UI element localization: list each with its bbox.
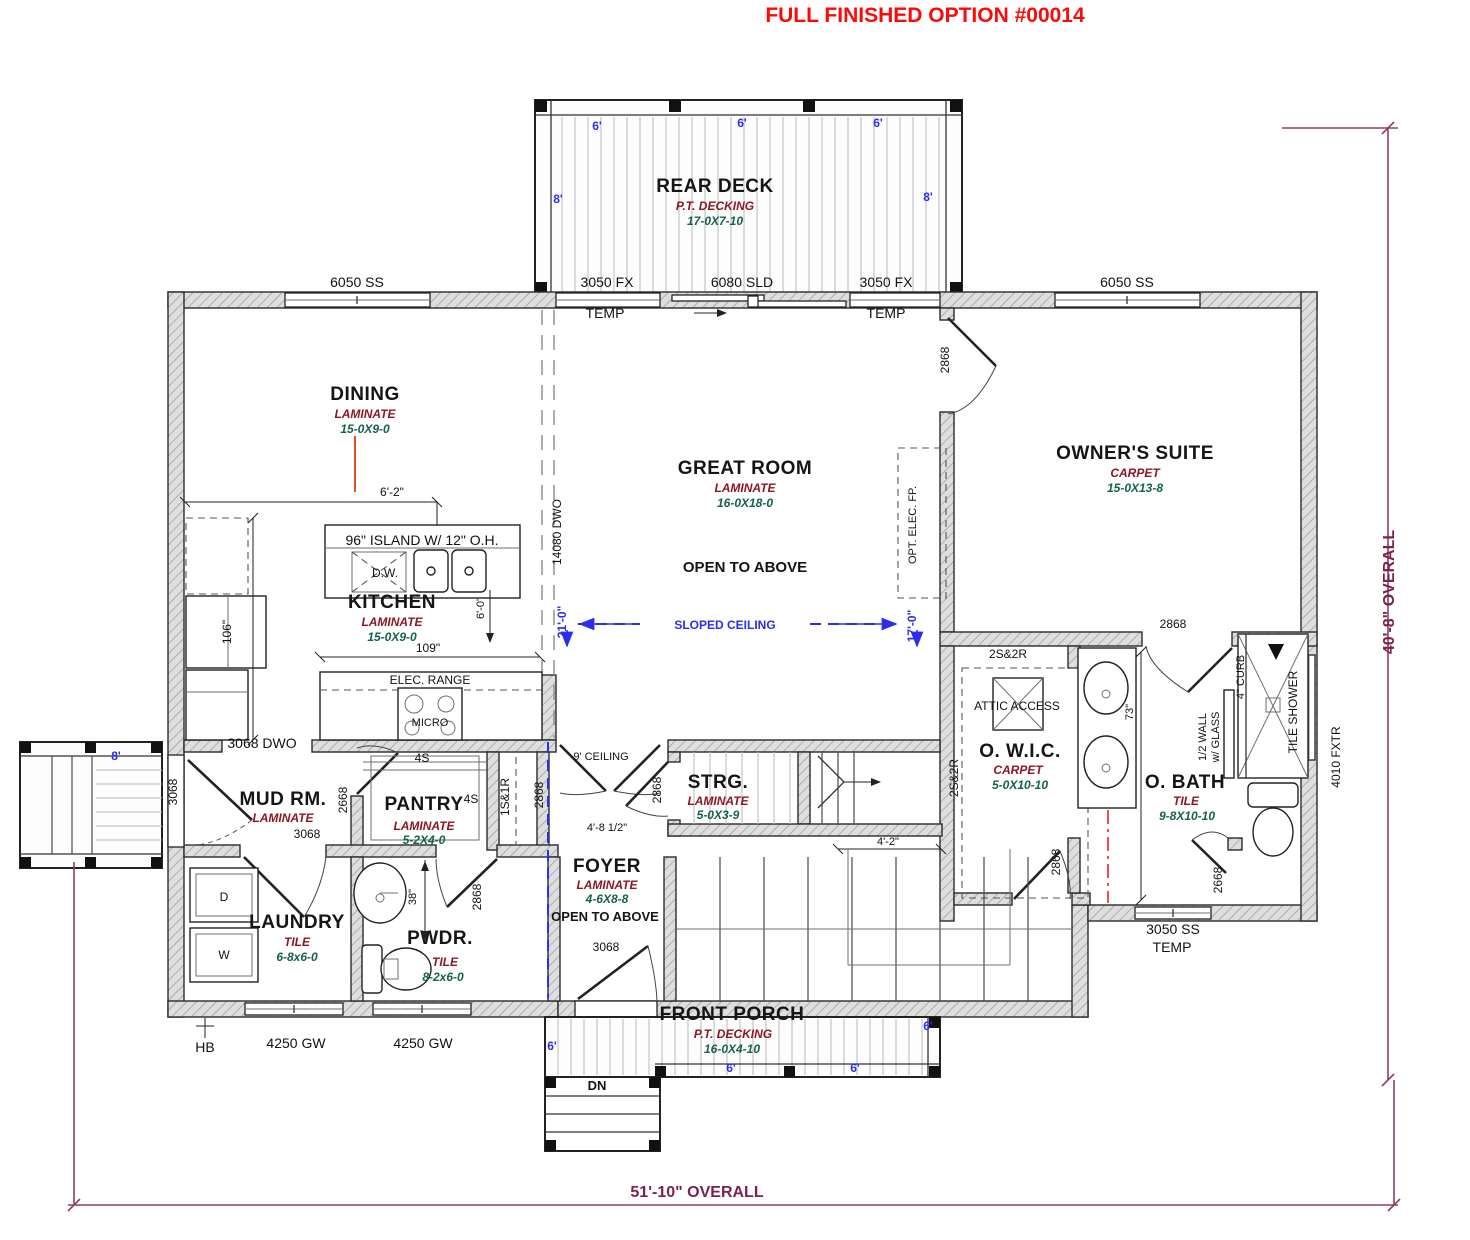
room-size-kitchen: 15-0X9-0 [367, 630, 417, 644]
dim-73: 73" [1124, 704, 1136, 720]
porch-dim: 6' [923, 1019, 933, 1033]
room-label-pantry: PANTRY [385, 794, 464, 815]
window-tag: 6050 SS [1100, 274, 1154, 290]
door-tag: 2868 [938, 346, 952, 373]
room-label-kitchen: KITCHEN [348, 592, 436, 613]
room-size-porch: 16-0X4-10 [704, 1042, 760, 1056]
window-tag: 6050 SS [330, 274, 384, 290]
window-tag: 4010 FXTR [1329, 726, 1343, 788]
toilet-tank [1248, 783, 1298, 807]
range-note: ELEC. RANGE [390, 673, 471, 687]
door-tag: 2668 [1211, 866, 1225, 893]
room-finish-great-room: LAMINATE [714, 481, 776, 495]
shelf-note: 2S&2R [947, 759, 961, 797]
deck-dim: 8' [923, 190, 933, 204]
room-label-pwdr: PWDR. [407, 928, 473, 949]
room-label-mud: MUD RM. [240, 789, 327, 810]
room-size-rear-deck: 17-0X7-10 [687, 214, 743, 228]
overall-width: 51'-10" OVERALL [630, 1184, 763, 1201]
room-label-wic: O. W.I.C. [979, 741, 1061, 762]
fireplace-note: OPT. ELEC. FP. [907, 486, 919, 564]
room-finish-dining: LAMINATE [334, 407, 396, 421]
open-to-above-note-foyer: OPEN TO ABOVE [551, 909, 659, 924]
toilet-bowl [1253, 808, 1293, 856]
room-label-porch: FRONT PORCH [660, 1004, 805, 1025]
door-tag: 2868 [650, 776, 664, 803]
room-size-strg: 5-0X3-9 [697, 808, 740, 822]
kitchen [186, 518, 542, 740]
room-finish-obath: TILE [1173, 794, 1200, 808]
room-size-great-room: 16-0X18-0 [717, 496, 773, 510]
room-label-owners-suite: OWNER'S SUITE [1056, 443, 1214, 464]
room-size-dining: 15-0X9-0 [340, 422, 390, 436]
room-finish-pantry: LAMINATE [393, 819, 455, 833]
opening-tag: 3068 DWO [227, 735, 296, 751]
dim-17: 17'-0" [905, 610, 919, 643]
ceiling-note: 9' CEILING [573, 751, 628, 763]
room-finish-mud: LAMINATE [252, 811, 314, 825]
window-tag: 3050 SS [1146, 921, 1200, 937]
range [398, 688, 462, 740]
window-tag: 3050 FX [581, 274, 635, 290]
shelf-note-4s: 4S [464, 792, 479, 806]
hose-bib-label: HB [195, 1039, 214, 1055]
room-finish-kitchen: LAMINATE [361, 615, 423, 629]
room-size-foyer: 4-6X8-8 [585, 892, 629, 906]
half-wall-note2: w/ GLASS [1210, 712, 1222, 764]
tile-shower-note: TILE SHOWER [1286, 670, 1300, 753]
room-size-pwdr: 8-2x6-0 [422, 970, 464, 984]
room-label-great-room: GREAT ROOM [678, 458, 812, 479]
temp-tag: TEMP [1153, 939, 1192, 955]
room-label-obath: O. BATH [1145, 772, 1225, 793]
dn-label: DN [588, 1078, 607, 1093]
dim-42: 4'-2" [877, 836, 899, 848]
window-tag: 3050 FX [860, 274, 914, 290]
room-label-rear-deck: REAR DECK [656, 176, 773, 197]
room-size-laundry: 6-8x6-0 [276, 950, 318, 964]
room-finish-foyer: LAMINATE [576, 878, 638, 892]
room-label-foyer: FOYER [573, 856, 641, 877]
floor-plan-page: FULL FINISHED OPTION #00014 6' 6' 6' 8' … [0, 0, 1470, 1240]
room-finish-strg: LAMINATE [687, 794, 749, 808]
dim-60: 6'-0" [475, 597, 487, 619]
window-tag: 6080 SLD [711, 274, 773, 290]
window-tag: 4250 GW [393, 1035, 453, 1051]
dim-106: 106" [220, 620, 234, 644]
porch-dim: 6' [850, 1061, 860, 1075]
room-finish-owners-suite: CARPET [1110, 466, 1161, 480]
porch-dim: 6' [726, 1061, 736, 1075]
floor-plan-drawing: FULL FINISHED OPTION #00014 6' 6' 6' 8' … [0, 0, 1470, 1240]
dim-38: 38" [407, 889, 419, 905]
room-label-laundry: LAUNDRY [249, 912, 345, 933]
door-tag: 2668 [336, 786, 350, 813]
door-tag: 2868 [1160, 617, 1187, 631]
shelf-note: 2S&2R [989, 647, 1027, 661]
temp-tag: TEMP [867, 305, 906, 321]
room-size-pantry: 5-2X4-0 [403, 833, 446, 847]
dim-48: 4'-8 1/2" [587, 822, 627, 834]
closet-note: 1S&1R [498, 778, 512, 816]
door-tag: 3068 [166, 778, 180, 805]
micro-note: MICRO [412, 717, 449, 729]
half-wall-note: 1/2 WALL [1197, 713, 1209, 761]
curb-note: 4" CURB [1235, 655, 1247, 699]
room-size-owners-suite: 15-0X13-8 [1107, 481, 1163, 495]
attic-access-note: ATTIC ACCESS [974, 699, 1060, 713]
dim-21: 21'-0" [555, 606, 569, 639]
sloped-ceiling-note: SLOPED CEILING [674, 618, 775, 632]
island-note: 96" ISLAND W/ 12" O.H. [345, 532, 498, 548]
rear-deck: 6' 6' 6' 8' 8' REAR DECK P.T. DECKING 17… [535, 100, 962, 294]
plan-title: FULL FINISHED OPTION #00014 [765, 4, 1085, 27]
temp-tag: TEMP [586, 305, 625, 321]
dryer-label: D [220, 890, 229, 904]
door-tag: 2868 [532, 781, 546, 808]
main-stairs [676, 857, 1072, 1001]
dim-62: 6'-2" [380, 485, 404, 499]
front-porch: DN 6' 6' 6' 6' FRONT PORCH P.T. DECKING … [545, 1004, 940, 1151]
window-tag: 4250 GW [266, 1035, 326, 1051]
door-tag: 2868 [1049, 848, 1063, 875]
room-label-strg: STRG. [688, 772, 749, 793]
deck-dim: 6' [737, 116, 747, 130]
side-deck: 8' [20, 742, 162, 868]
deck-dim: 6' [592, 119, 602, 133]
shelf-note-4s: 4S [415, 751, 430, 765]
room-size-obath: 9-8X10-10 [1159, 809, 1215, 823]
deck-dim: 8' [553, 192, 563, 206]
room-finish-rear-deck: P.T. DECKING [676, 199, 754, 213]
deck-dim: 6' [873, 116, 883, 130]
door-tag: 3068 [294, 827, 321, 841]
porch-dim: 6' [547, 1039, 557, 1053]
dishwasher-note: D.W. [372, 566, 398, 580]
room-finish-laundry: TILE [284, 935, 311, 949]
room-size-wic: 5-0X10-10 [992, 778, 1048, 792]
opening-tag: 14080 DWO [550, 499, 564, 565]
room-label-dining: DINING [330, 384, 400, 405]
door-tag: 2868 [470, 883, 484, 910]
half-wall [1224, 690, 1234, 778]
overall-height: 40'-8" OVERALL [1381, 530, 1398, 655]
pwdr-toilet-tank [362, 945, 382, 993]
open-to-above-note: OPEN TO ABOVE [683, 559, 807, 576]
room-finish-wic: CARPET [993, 763, 1044, 777]
dim-109: 109" [416, 641, 440, 655]
room-finish-porch: P.T. DECKING [694, 1027, 772, 1041]
room-finish-pwdr: TILE [432, 955, 459, 969]
side-deck-dim: 8' [111, 749, 121, 763]
washer-label: W [218, 948, 230, 962]
door-tag: 3068 [593, 940, 620, 954]
